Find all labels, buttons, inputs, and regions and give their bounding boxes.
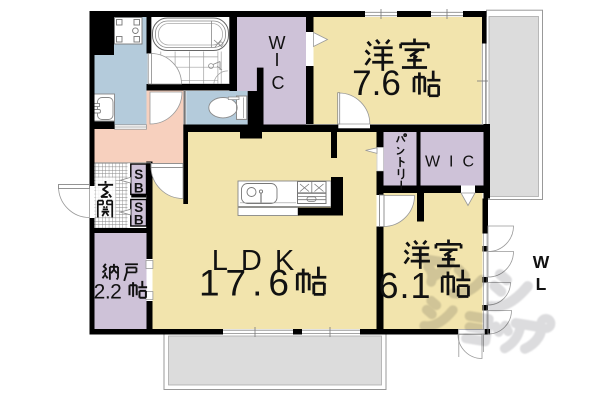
svg-text:I: I [274,50,279,70]
svg-text:6.1: 6.1 [378,265,431,306]
svg-text:17.6: 17.6 [199,263,295,304]
svg-text:WIC: WIC [425,154,483,171]
svg-text:B: B [134,213,144,228]
svg-text:2.2: 2.2 [94,281,122,304]
svg-text:L: L [536,274,547,294]
svg-text:W: W [533,252,550,272]
svg-text:C: C [272,73,285,93]
svg-text:7.6: 7.6 [352,64,401,103]
svg-text:B: B [134,181,144,196]
